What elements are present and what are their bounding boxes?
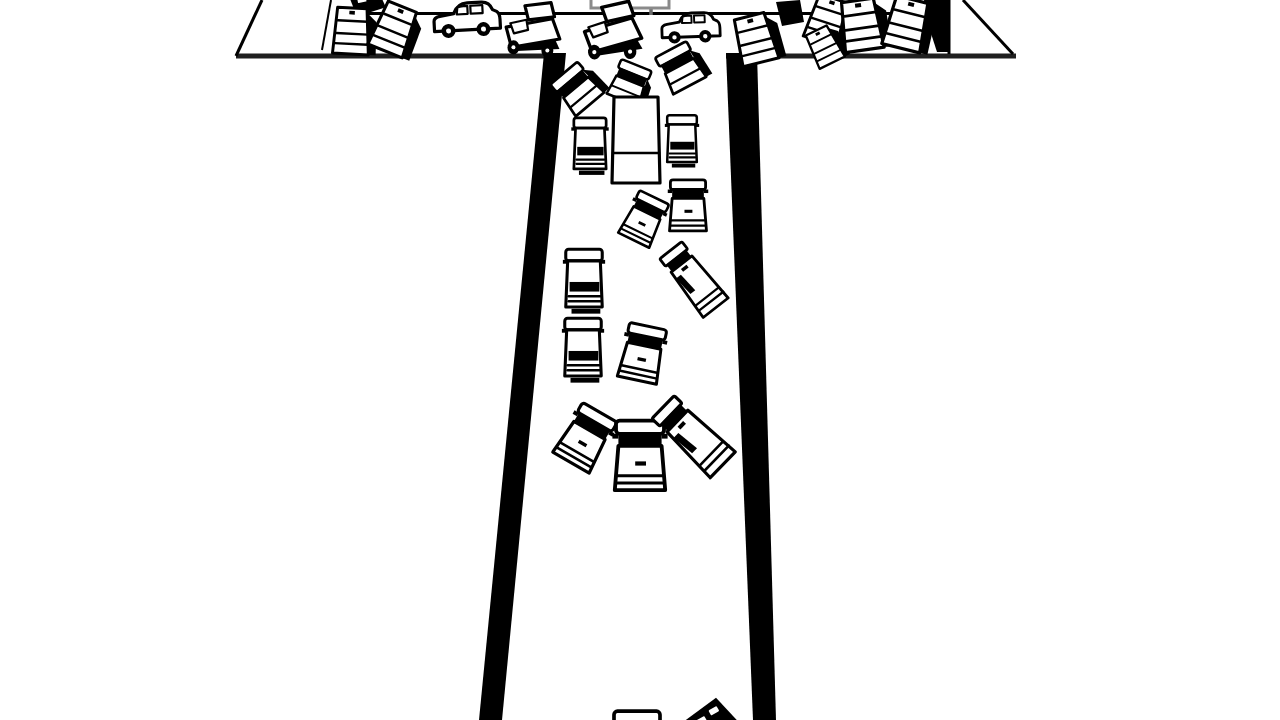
car-carRear34 — [654, 38, 712, 95]
car-carRearA — [571, 118, 608, 175]
car-carRearB — [611, 711, 664, 720]
traffic-jam-illustration — [0, 0, 1280, 720]
car-carRearB — [551, 401, 620, 474]
car-carSide — [433, 1, 501, 38]
car-carRearA — [562, 318, 604, 382]
band-right-edge — [963, 0, 1013, 54]
car-carSide — [661, 12, 720, 44]
right-road-edge — [726, 53, 776, 720]
car-carDark — [679, 694, 741, 720]
left-road-edge — [479, 53, 566, 720]
car-carRearB — [668, 180, 708, 231]
car-wagon — [658, 240, 728, 317]
car-carRearB — [617, 189, 672, 248]
car-carRearA — [563, 249, 605, 313]
car-van — [612, 97, 660, 183]
car-car34 — [505, 1, 561, 58]
band-left-edge — [236, 0, 262, 56]
left-pole — [322, 0, 331, 50]
car-carRearA — [665, 115, 699, 167]
car-carRearB — [612, 421, 667, 491]
cars-layer — [332, 0, 939, 720]
car-car34 — [583, 1, 644, 63]
car-carRearB — [615, 322, 669, 385]
animation-frame — [0, 0, 1280, 720]
band-mid-shadow — [776, 0, 804, 26]
